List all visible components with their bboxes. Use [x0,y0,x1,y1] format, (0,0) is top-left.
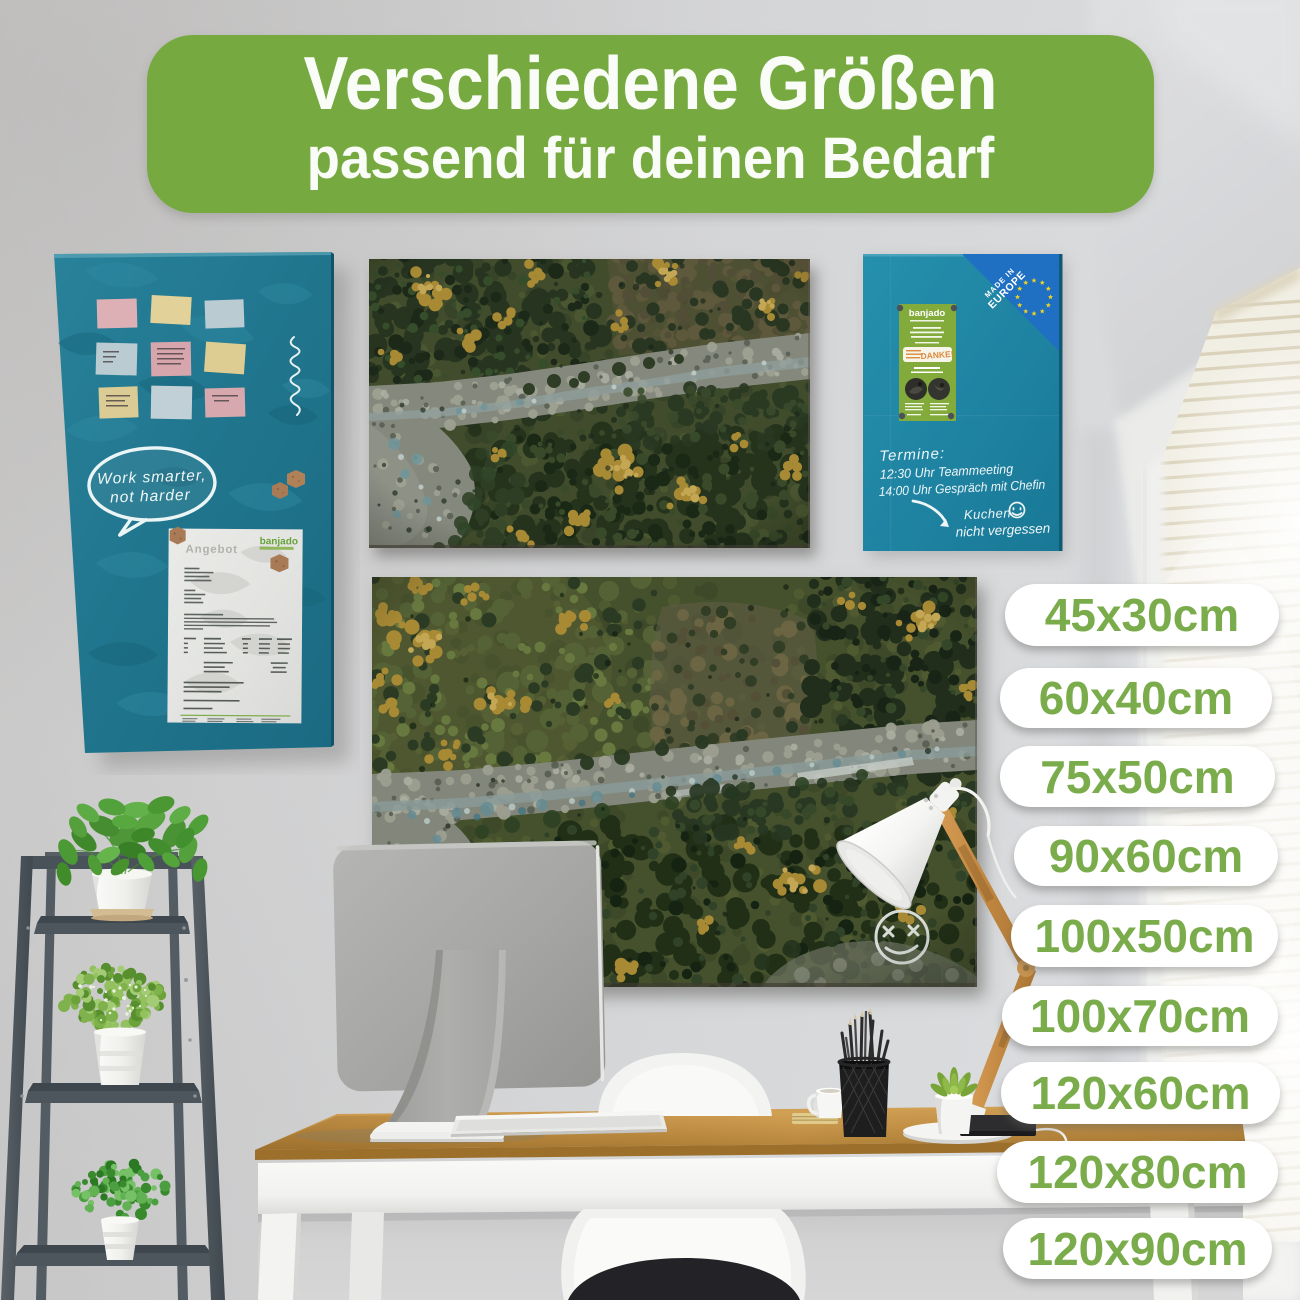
svg-text:Angebot: Angebot [186,544,238,556]
svg-text:banjado: banjado [260,536,298,547]
svg-text:not harder: not harder [110,487,191,507]
svg-text:Termine:: Termine: [879,445,945,465]
svg-text:banjado: banjado [909,308,946,319]
svg-text:Kuchen: Kuchen [964,505,1012,522]
